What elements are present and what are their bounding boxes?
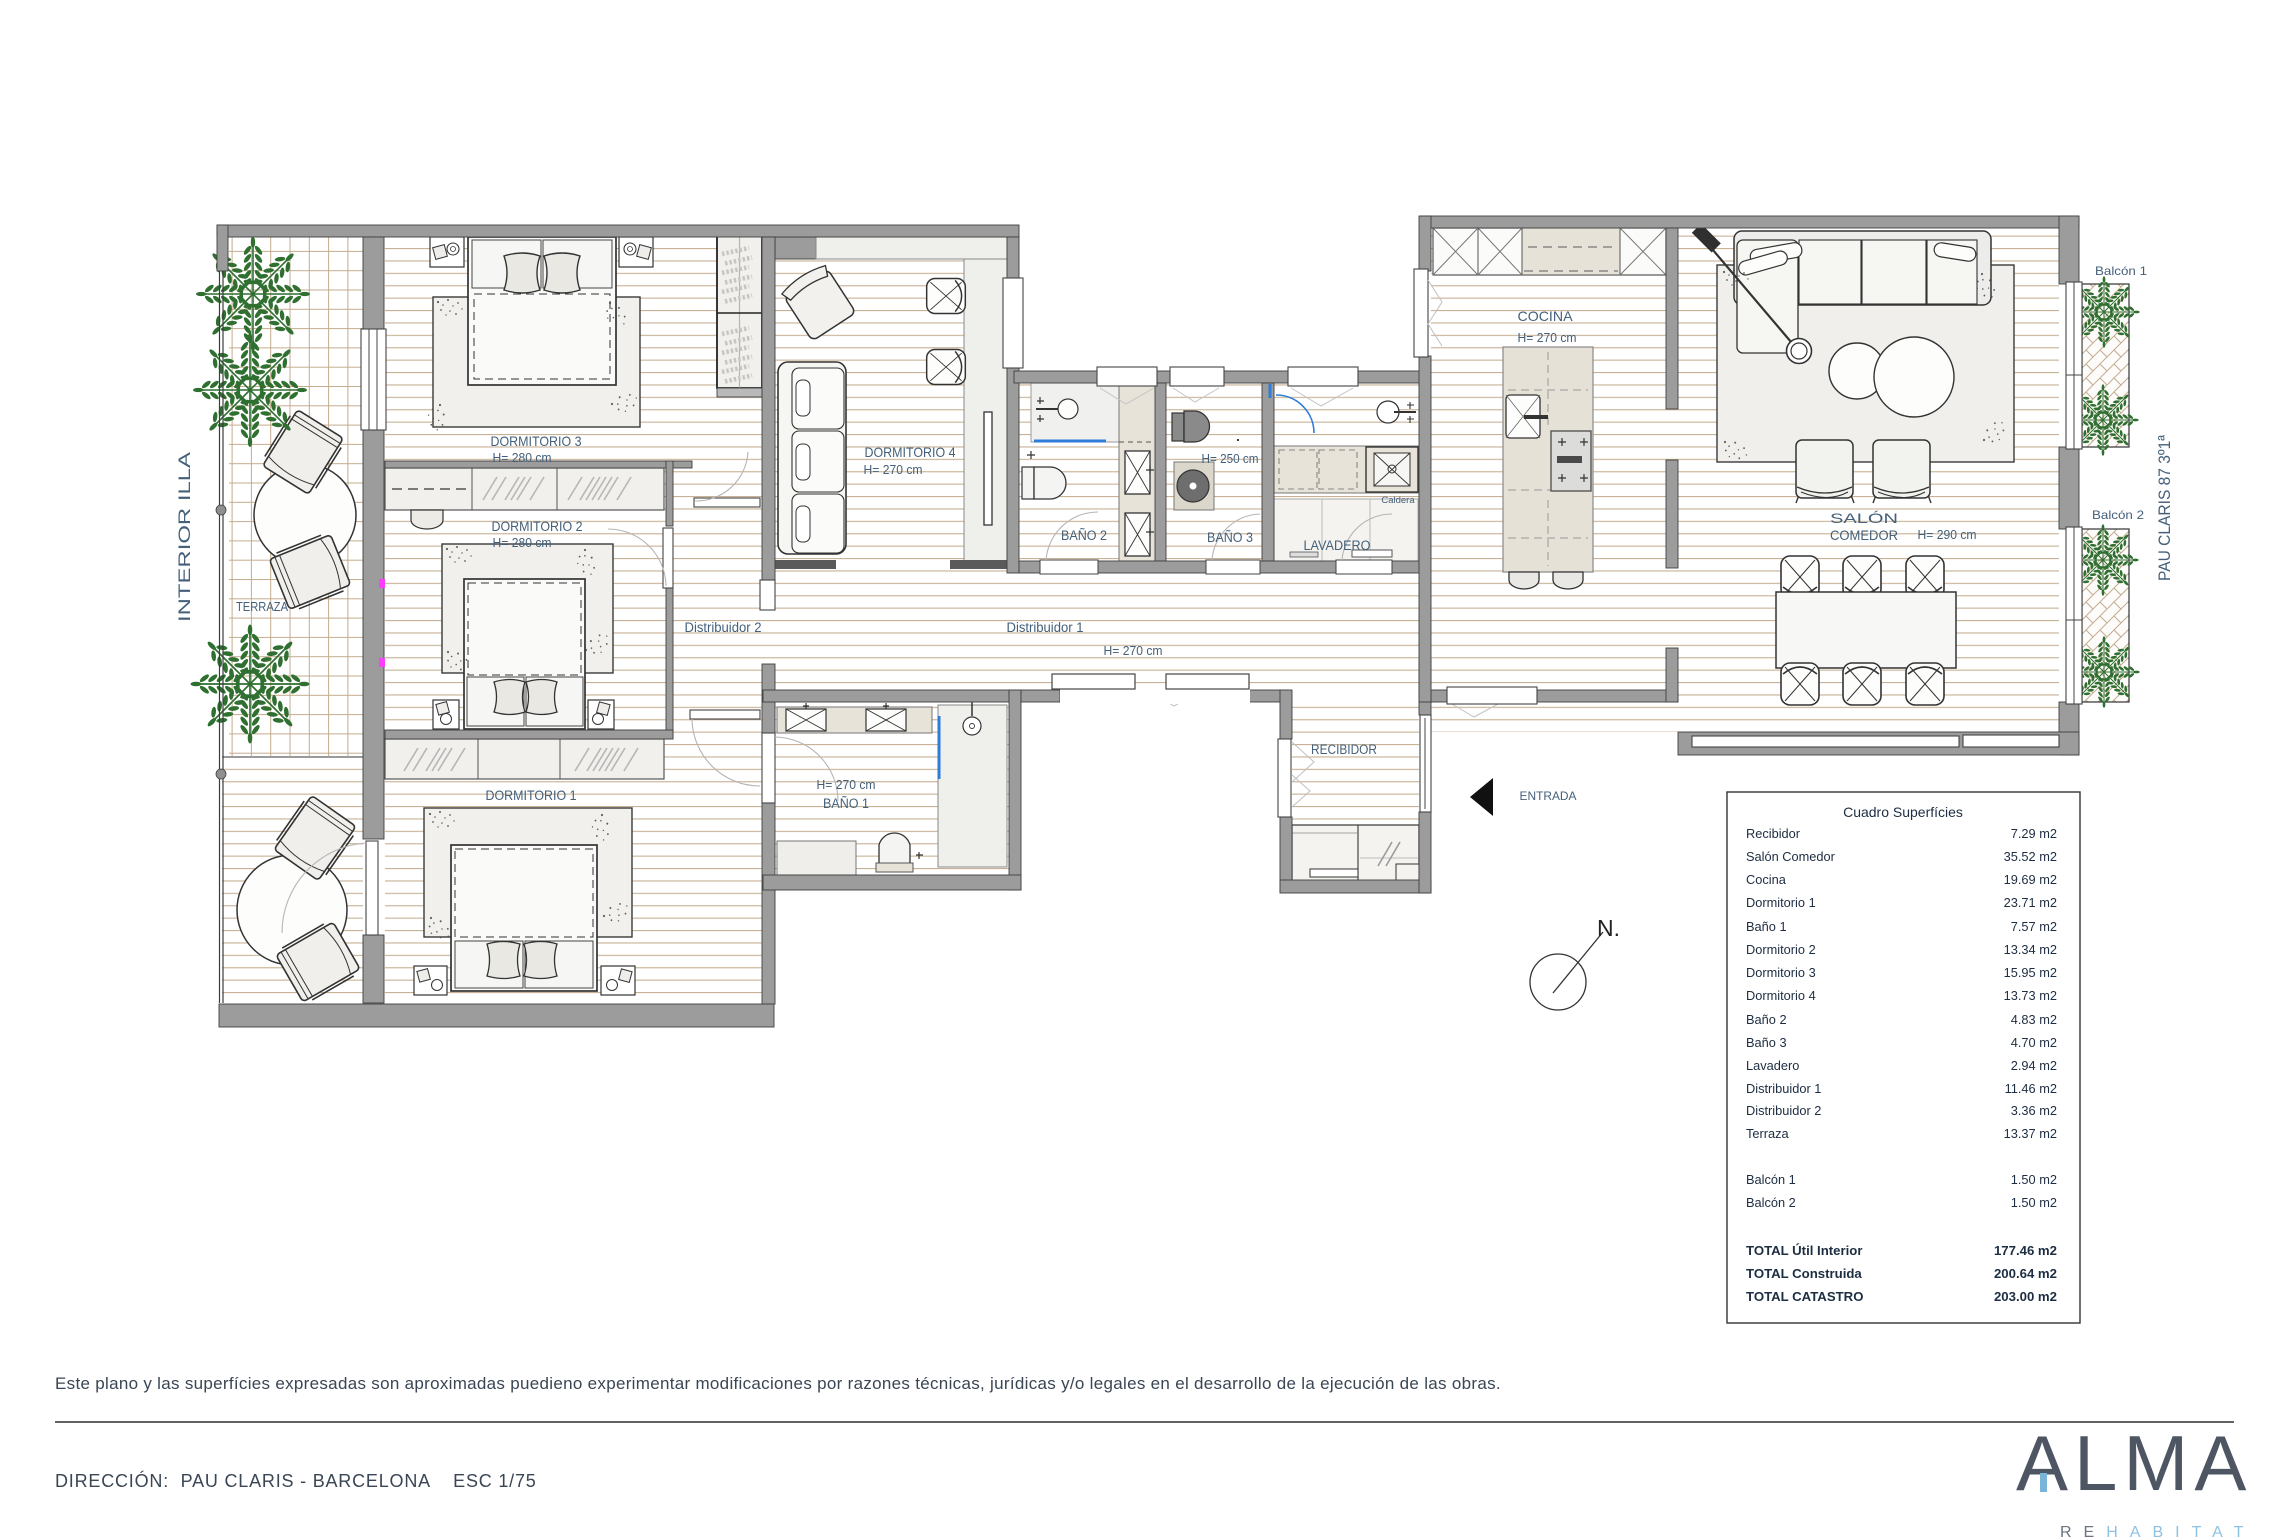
svg-text:Distribuidor 1: Distribuidor 1 <box>1007 620 1084 635</box>
svg-text:DIRECCIÓN: PAU CLARIS - BARCE: DIRECCIÓN: PAU CLARIS - BARCELONA ESC 1/… <box>55 1470 537 1491</box>
svg-text:Distribuidor 1: Distribuidor 1 <box>1746 1081 1821 1096</box>
svg-text:DORMITORIO 2: DORMITORIO 2 <box>492 518 583 534</box>
svg-text:TOTAL CATASTRO: TOTAL CATASTRO <box>1746 1289 1863 1304</box>
svg-text:Cocina: Cocina <box>1746 872 1787 887</box>
svg-text:Salón Comedor: Salón Comedor <box>1746 849 1836 864</box>
svg-text:DORMITORIO 3: DORMITORIO 3 <box>491 433 582 449</box>
svg-text:1.50 m2: 1.50 m2 <box>2011 1172 2057 1187</box>
svg-text:Terraza: Terraza <box>1746 1126 1790 1141</box>
svg-text:H= 290 cm: H= 290 cm <box>1918 528 1977 542</box>
svg-text:15.95 m2: 15.95 m2 <box>2004 965 2057 980</box>
svg-text:Balcón 2: Balcón 2 <box>2092 508 2144 522</box>
svg-text:Dormitorio 3: Dormitorio 3 <box>1746 965 1816 980</box>
svg-text:13.73 m2: 13.73 m2 <box>2004 988 2057 1003</box>
svg-text:7.57 m2: 7.57 m2 <box>2011 919 2057 934</box>
svg-text:Distribuidor 2: Distribuidor 2 <box>1746 1103 1821 1118</box>
svg-text:4.70 m2: 4.70 m2 <box>2011 1035 2057 1050</box>
svg-text:Dormitorio 4: Dormitorio 4 <box>1746 988 1816 1003</box>
svg-text:BAÑO 3: BAÑO 3 <box>1207 530 1253 545</box>
svg-text:ENTRADA: ENTRADA <box>1520 789 1577 803</box>
svg-text:RECIBIDOR: RECIBIDOR <box>1311 742 1377 757</box>
svg-text:BAÑO 2: BAÑO 2 <box>1061 528 1107 543</box>
svg-text:19.69 m2: 19.69 m2 <box>2004 872 2057 887</box>
svg-text:REHABITAT: REHABITAT <box>2060 1524 2255 1540</box>
svg-text:Balcón 1: Balcón 1 <box>2095 264 2147 278</box>
svg-text:Dormitorio 2: Dormitorio 2 <box>1746 942 1816 957</box>
svg-text:7.29 m2: 7.29 m2 <box>2011 826 2057 841</box>
svg-text:H= 270 cm: H= 270 cm <box>1104 644 1163 658</box>
svg-text:Este plano y las superfícies e: Este plano y las superfícies expresadas … <box>55 1374 1501 1393</box>
svg-text:200.64 m2: 200.64 m2 <box>1994 1266 2057 1281</box>
svg-text:TOTAL Útil Interior: TOTAL Útil Interior <box>1746 1243 1863 1258</box>
svg-text:Caldera: Caldera <box>1381 495 1415 506</box>
svg-text:N.: N. <box>1597 915 1620 941</box>
svg-text:H= 270 cm: H= 270 cm <box>817 778 876 792</box>
svg-text:INTERIOR ILLA: INTERIOR ILLA <box>176 452 194 622</box>
svg-text:3.36 m2: 3.36 m2 <box>2011 1103 2057 1118</box>
svg-text:13.37 m2: 13.37 m2 <box>2004 1126 2057 1141</box>
svg-text:LAVADERO: LAVADERO <box>1304 538 1371 553</box>
svg-text:TOTAL Construida: TOTAL Construida <box>1746 1266 1862 1281</box>
svg-text:Dormitorio 1: Dormitorio 1 <box>1746 895 1816 910</box>
svg-text:COCINA: COCINA <box>1518 308 1574 324</box>
svg-text:PAU CLARIS 87 3º1ª: PAU CLARIS 87 3º1ª <box>2156 434 2174 581</box>
svg-text:11.46 m2: 11.46 m2 <box>2005 1081 2057 1096</box>
svg-text:Cuadro Superfícies: Cuadro Superfícies <box>1843 804 1963 820</box>
svg-text:DORMITORIO 4: DORMITORIO 4 <box>865 444 956 460</box>
svg-text:H= 270 cm: H= 270 cm <box>864 463 923 477</box>
svg-text:177.46 m2: 177.46 m2 <box>1994 1243 2057 1258</box>
svg-text:23.71 m2: 23.71 m2 <box>2004 895 2057 910</box>
svg-text:DORMITORIO 1: DORMITORIO 1 <box>486 787 577 803</box>
svg-text:Recibidor: Recibidor <box>1746 826 1801 841</box>
svg-text:Lavadero: Lavadero <box>1746 1058 1799 1073</box>
svg-text:TERRAZA: TERRAZA <box>236 600 289 614</box>
svg-text:Baño 1: Baño 1 <box>1746 919 1787 934</box>
svg-text:Balcón 1: Balcón 1 <box>1746 1172 1796 1187</box>
svg-text:1.50 m2: 1.50 m2 <box>2011 1195 2057 1210</box>
svg-text:H= 280 cm: H= 280 cm <box>493 451 552 465</box>
svg-text:BAÑO 1: BAÑO 1 <box>823 796 869 811</box>
svg-text:35.52 m2: 35.52 m2 <box>2004 849 2057 864</box>
svg-text:4.83 m2: 4.83 m2 <box>2011 1012 2057 1027</box>
svg-text:13.34 m2: 13.34 m2 <box>2004 942 2057 957</box>
svg-text:ALMA: ALMA <box>2016 1419 2252 1507</box>
svg-text:H= 250 cm: H= 250 cm <box>1202 452 1259 466</box>
svg-text:H= 280 cm: H= 280 cm <box>493 536 552 550</box>
svg-text:2.94 m2: 2.94 m2 <box>2011 1058 2057 1073</box>
svg-text:Baño 3: Baño 3 <box>1746 1035 1787 1050</box>
svg-text:203.00 m2: 203.00 m2 <box>1994 1289 2057 1304</box>
svg-text:COMEDOR: COMEDOR <box>1830 527 1898 543</box>
svg-text:Distribuidor 2: Distribuidor 2 <box>685 620 762 635</box>
svg-text:Baño 2: Baño 2 <box>1746 1012 1787 1027</box>
svg-text:Balcón 2: Balcón 2 <box>1746 1195 1796 1210</box>
svg-text:H= 270 cm: H= 270 cm <box>1518 331 1577 345</box>
svg-text:SALÓN: SALÓN <box>1830 510 1898 526</box>
